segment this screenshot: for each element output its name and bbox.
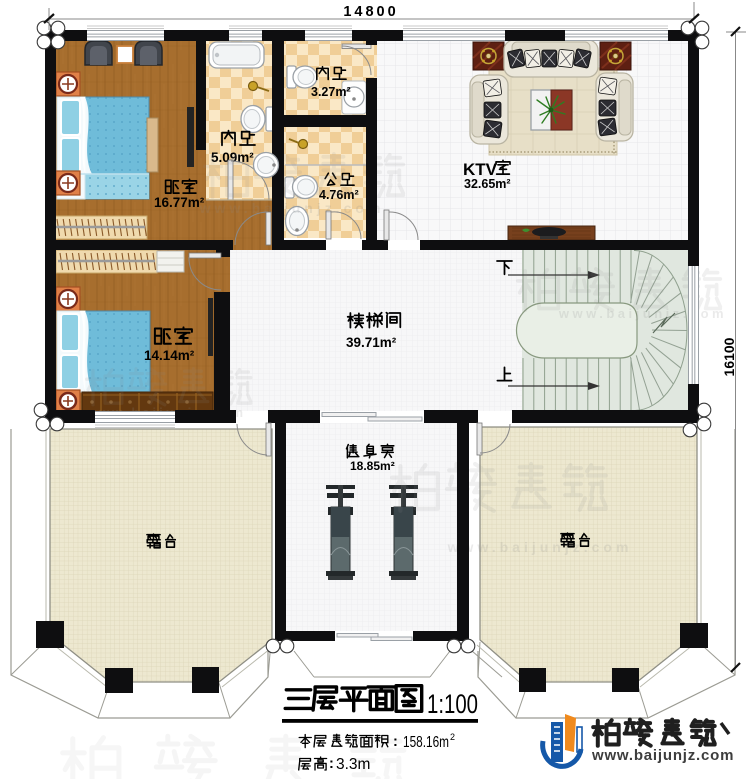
- svg-text:www.baijunjz.com: www.baijunjz.com: [558, 306, 727, 321]
- svg-text:www.baijunjz.com: www.baijunjz.com: [447, 539, 633, 555]
- svg-text::: :: [329, 756, 334, 772]
- svg-text:16100: 16100: [721, 337, 737, 376]
- svg-text:www.baijunjz.com: www.baijunjz.com: [199, 200, 385, 216]
- svg-text:3.3m: 3.3m: [336, 756, 370, 773]
- svg-text:18.85m²: 18.85m²: [350, 459, 395, 473]
- svg-text:16.77m²: 16.77m²: [154, 195, 205, 210]
- svg-text:158.16m: 158.16m: [403, 734, 449, 751]
- svg-text::: :: [393, 734, 398, 750]
- svg-text:32.65m²: 32.65m²: [464, 177, 511, 191]
- svg-text:3.27m²: 3.27m²: [311, 85, 351, 99]
- svg-text:1:100: 1:100: [427, 689, 478, 719]
- svg-text:39.71m²: 39.71m²: [346, 335, 397, 350]
- svg-text:www.baijunjz.com: www.baijunjz.com: [591, 747, 734, 764]
- svg-text:14800: 14800: [343, 4, 398, 20]
- svg-text:14.14m²: 14.14m²: [144, 348, 195, 363]
- svg-text:2: 2: [450, 732, 455, 742]
